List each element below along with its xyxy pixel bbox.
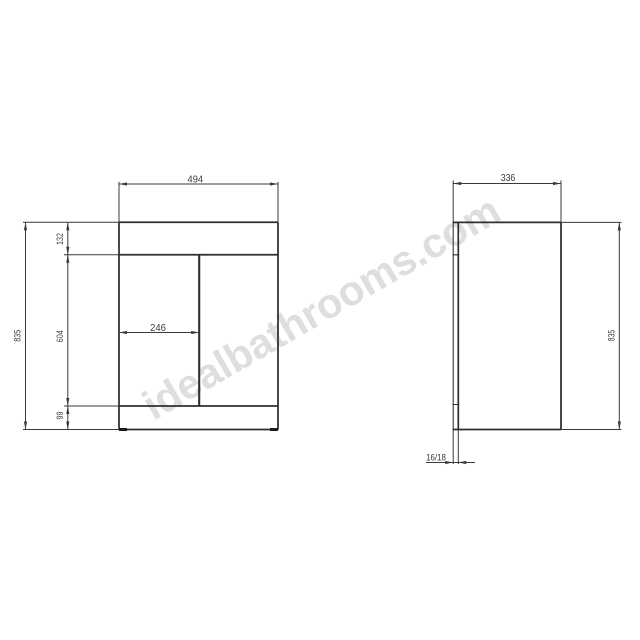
svg-text:132: 132 xyxy=(55,233,66,245)
svg-text:835: 835 xyxy=(607,330,618,342)
svg-text:246: 246 xyxy=(150,323,166,334)
svg-text:99: 99 xyxy=(55,412,66,420)
svg-text:604: 604 xyxy=(55,330,66,342)
svg-text:835: 835 xyxy=(12,330,23,342)
svg-text:336: 336 xyxy=(501,173,516,184)
svg-text:494: 494 xyxy=(188,174,204,185)
svg-text:16/18: 16/18 xyxy=(426,453,446,464)
